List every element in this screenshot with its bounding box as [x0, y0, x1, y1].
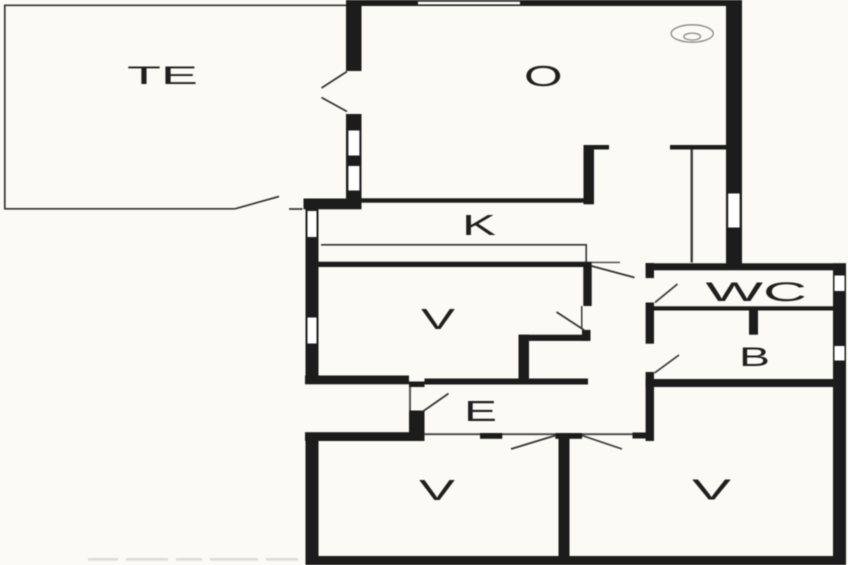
svg-text:E: E	[464, 396, 497, 428]
svg-text:V: V	[421, 304, 456, 336]
svg-text:V: V	[419, 475, 456, 507]
svg-text:O: O	[524, 61, 563, 93]
svg-text:K: K	[462, 210, 497, 242]
svg-text:WC: WC	[706, 277, 808, 307]
svg-text:TE: TE	[127, 62, 198, 90]
svg-text:V: V	[692, 475, 732, 507]
svg-text:B: B	[739, 342, 770, 372]
